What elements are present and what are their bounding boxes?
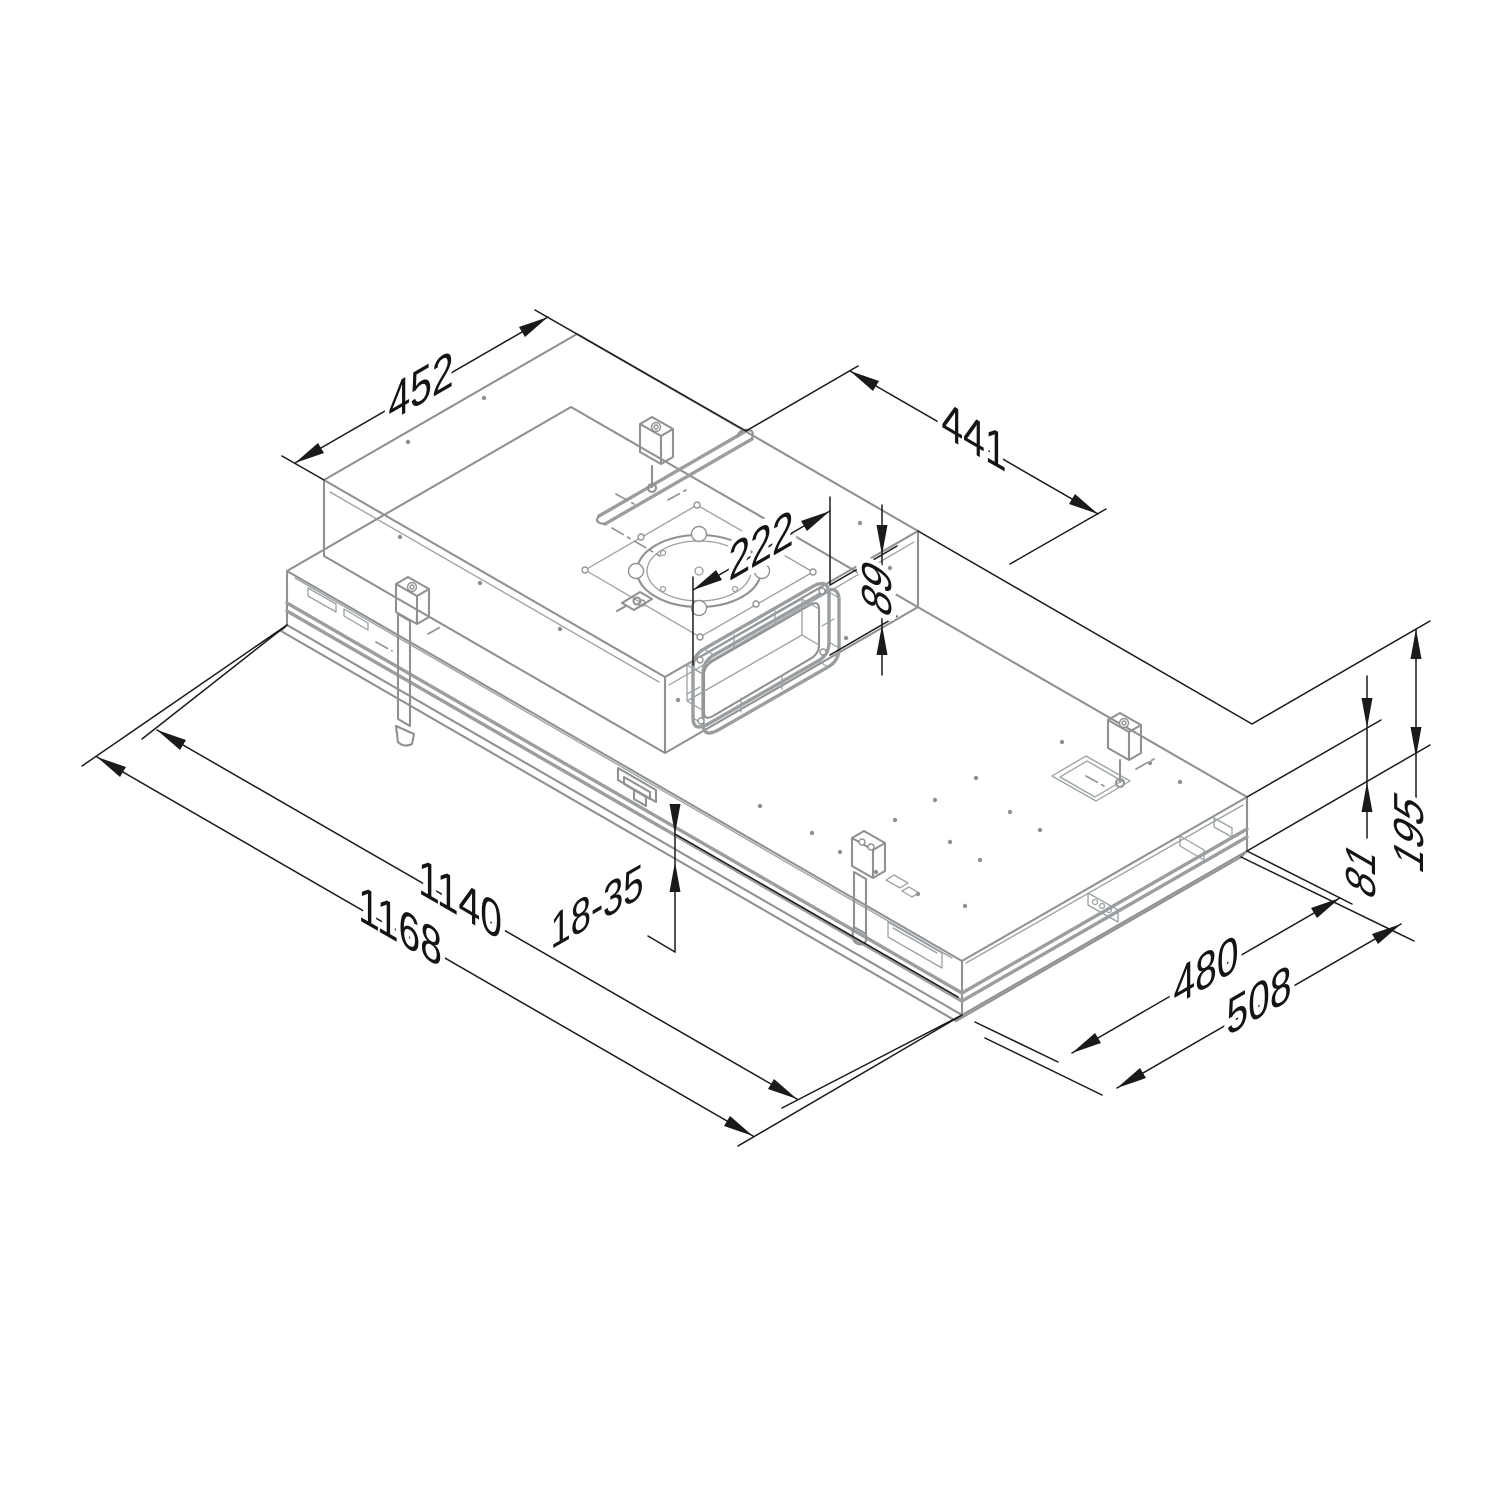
top-pads (886, 875, 919, 897)
arrowhead (1069, 494, 1098, 514)
arrowhead (670, 862, 681, 892)
drawing-page: 452 441 222 89 (0, 0, 1500, 1502)
bracket-screw (1120, 719, 1129, 728)
dimension-1140: 1140 (142, 625, 962, 1108)
arrowhead (1411, 629, 1422, 659)
clip-body (852, 831, 885, 878)
extension-lines (918, 531, 1430, 724)
arrowhead (1072, 1033, 1101, 1053)
arrowhead (1362, 698, 1373, 728)
dim-label-452: 452 (388, 339, 453, 434)
arrowhead (519, 317, 548, 337)
dimension-18-35: 18-35 (550, 804, 958, 997)
bracket-screw (408, 583, 417, 592)
arrowhead (157, 730, 186, 750)
leader-line (648, 936, 675, 952)
stiffener-rail (599, 431, 752, 524)
dim-label-18-35: 18-35 (550, 852, 643, 960)
dimension-452: 452 (282, 310, 746, 480)
dimension-89: 89 (830, 505, 900, 675)
extension-lines (746, 366, 1106, 564)
dim-label-441: 441 (941, 389, 1006, 484)
bracket-screw (652, 423, 661, 432)
cable-connector (617, 592, 652, 611)
stiffener-ends (597, 430, 753, 524)
dim-label-195: 195 (1385, 783, 1432, 880)
extension-lines (142, 625, 962, 1108)
arrowhead (1311, 898, 1340, 918)
dim-label-89: 89 (853, 551, 900, 625)
screw-dots (398, 396, 1182, 908)
clip-screws (859, 839, 874, 850)
arrowhead (724, 1116, 753, 1136)
front-slots-left (308, 588, 368, 630)
arrowhead (1117, 1068, 1146, 1088)
arrowhead (1362, 782, 1373, 812)
mounting-bracket-top (616, 417, 686, 504)
dim-label-81: 81 (1337, 833, 1384, 907)
dimensions: 452 441 222 89 (82, 310, 1432, 1146)
dimension-195: 195 (918, 531, 1432, 881)
arrowhead (1411, 727, 1422, 757)
arrowhead (295, 443, 324, 463)
ceiling-reference-line (675, 834, 958, 997)
technical-drawing: 452 441 222 89 (0, 0, 1500, 1502)
extension-lines (282, 310, 746, 480)
fixing-clip-front (852, 831, 885, 944)
arrowhead (850, 371, 879, 391)
arrowhead (97, 757, 126, 777)
arrowhead (768, 1079, 797, 1099)
spigot-duct-interior (687, 599, 819, 711)
plate-centerline (612, 528, 660, 556)
dimension-441: 441 (746, 366, 1106, 564)
arrowhead (801, 511, 830, 531)
